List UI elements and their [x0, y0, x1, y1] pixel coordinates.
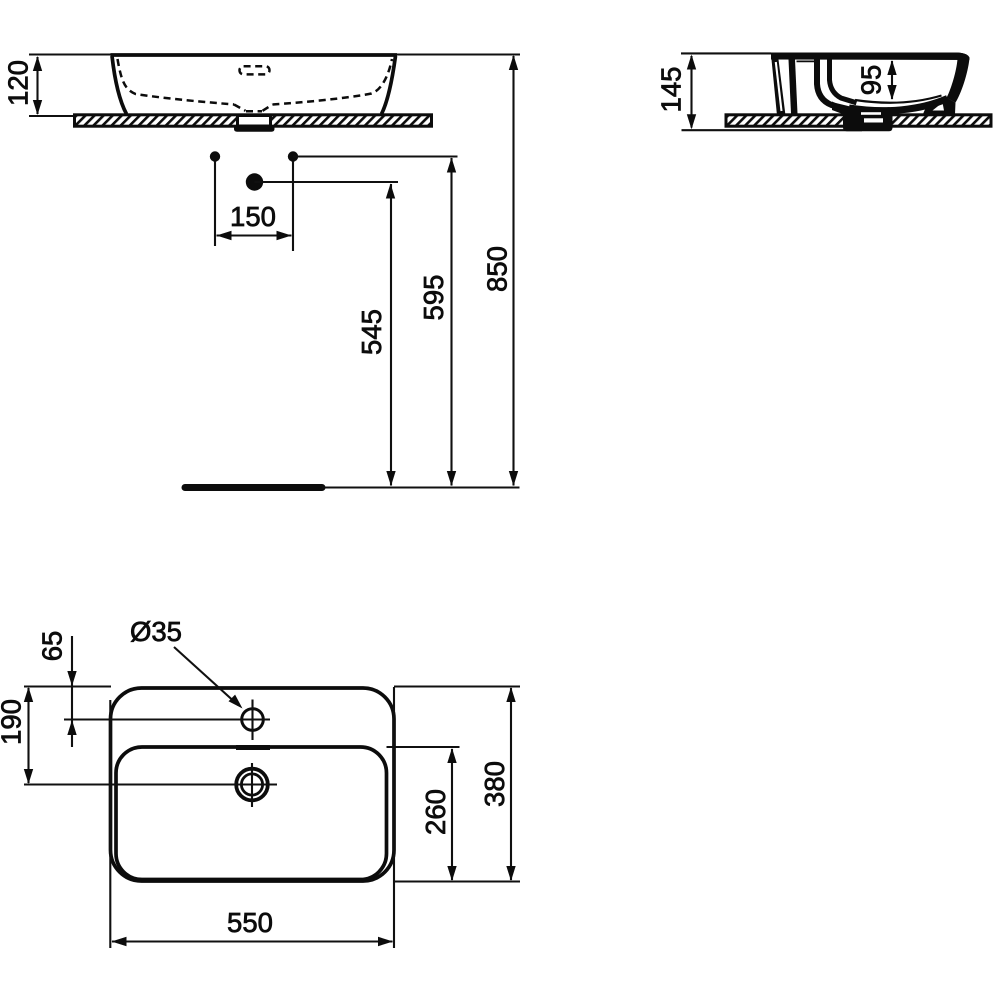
svg-text:120: 120 — [3, 60, 34, 106]
svg-text:65: 65 — [37, 631, 68, 662]
svg-text:260: 260 — [420, 789, 451, 835]
svg-text:190: 190 — [0, 699, 27, 745]
svg-text:850: 850 — [482, 246, 513, 292]
svg-text:595: 595 — [418, 275, 449, 321]
svg-text:Ø35: Ø35 — [130, 616, 182, 647]
svg-text:95: 95 — [856, 65, 887, 96]
svg-text:145: 145 — [656, 67, 687, 113]
svg-text:550: 550 — [227, 907, 273, 938]
svg-text:380: 380 — [479, 761, 510, 807]
svg-text:150: 150 — [230, 201, 276, 232]
svg-text:545: 545 — [356, 309, 387, 355]
